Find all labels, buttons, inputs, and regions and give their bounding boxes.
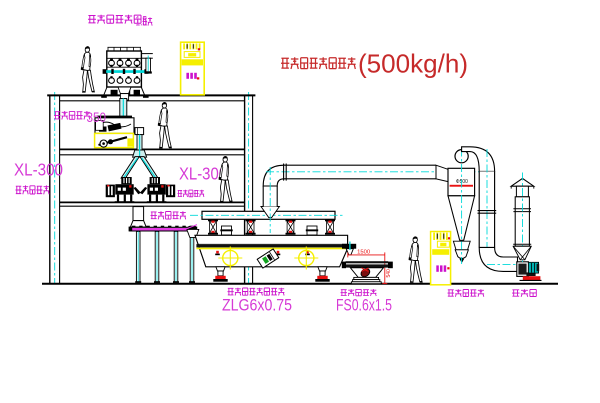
svg-text:XL-300: XL-300	[14, 160, 63, 180]
svg-text:1500: 1500	[357, 249, 370, 255]
svg-text:ZLG6x0.75: ZLG6x0.75	[222, 296, 292, 315]
svg-text:FS0.6x1.5: FS0.6x1.5	[336, 296, 392, 315]
svg-text:1.5: 1.5	[136, 14, 148, 29]
svg-text:350: 350	[87, 110, 107, 125]
svg-text:540: 540	[386, 269, 392, 278]
svg-text:(500kg/h): (500kg/h)	[358, 49, 468, 79]
